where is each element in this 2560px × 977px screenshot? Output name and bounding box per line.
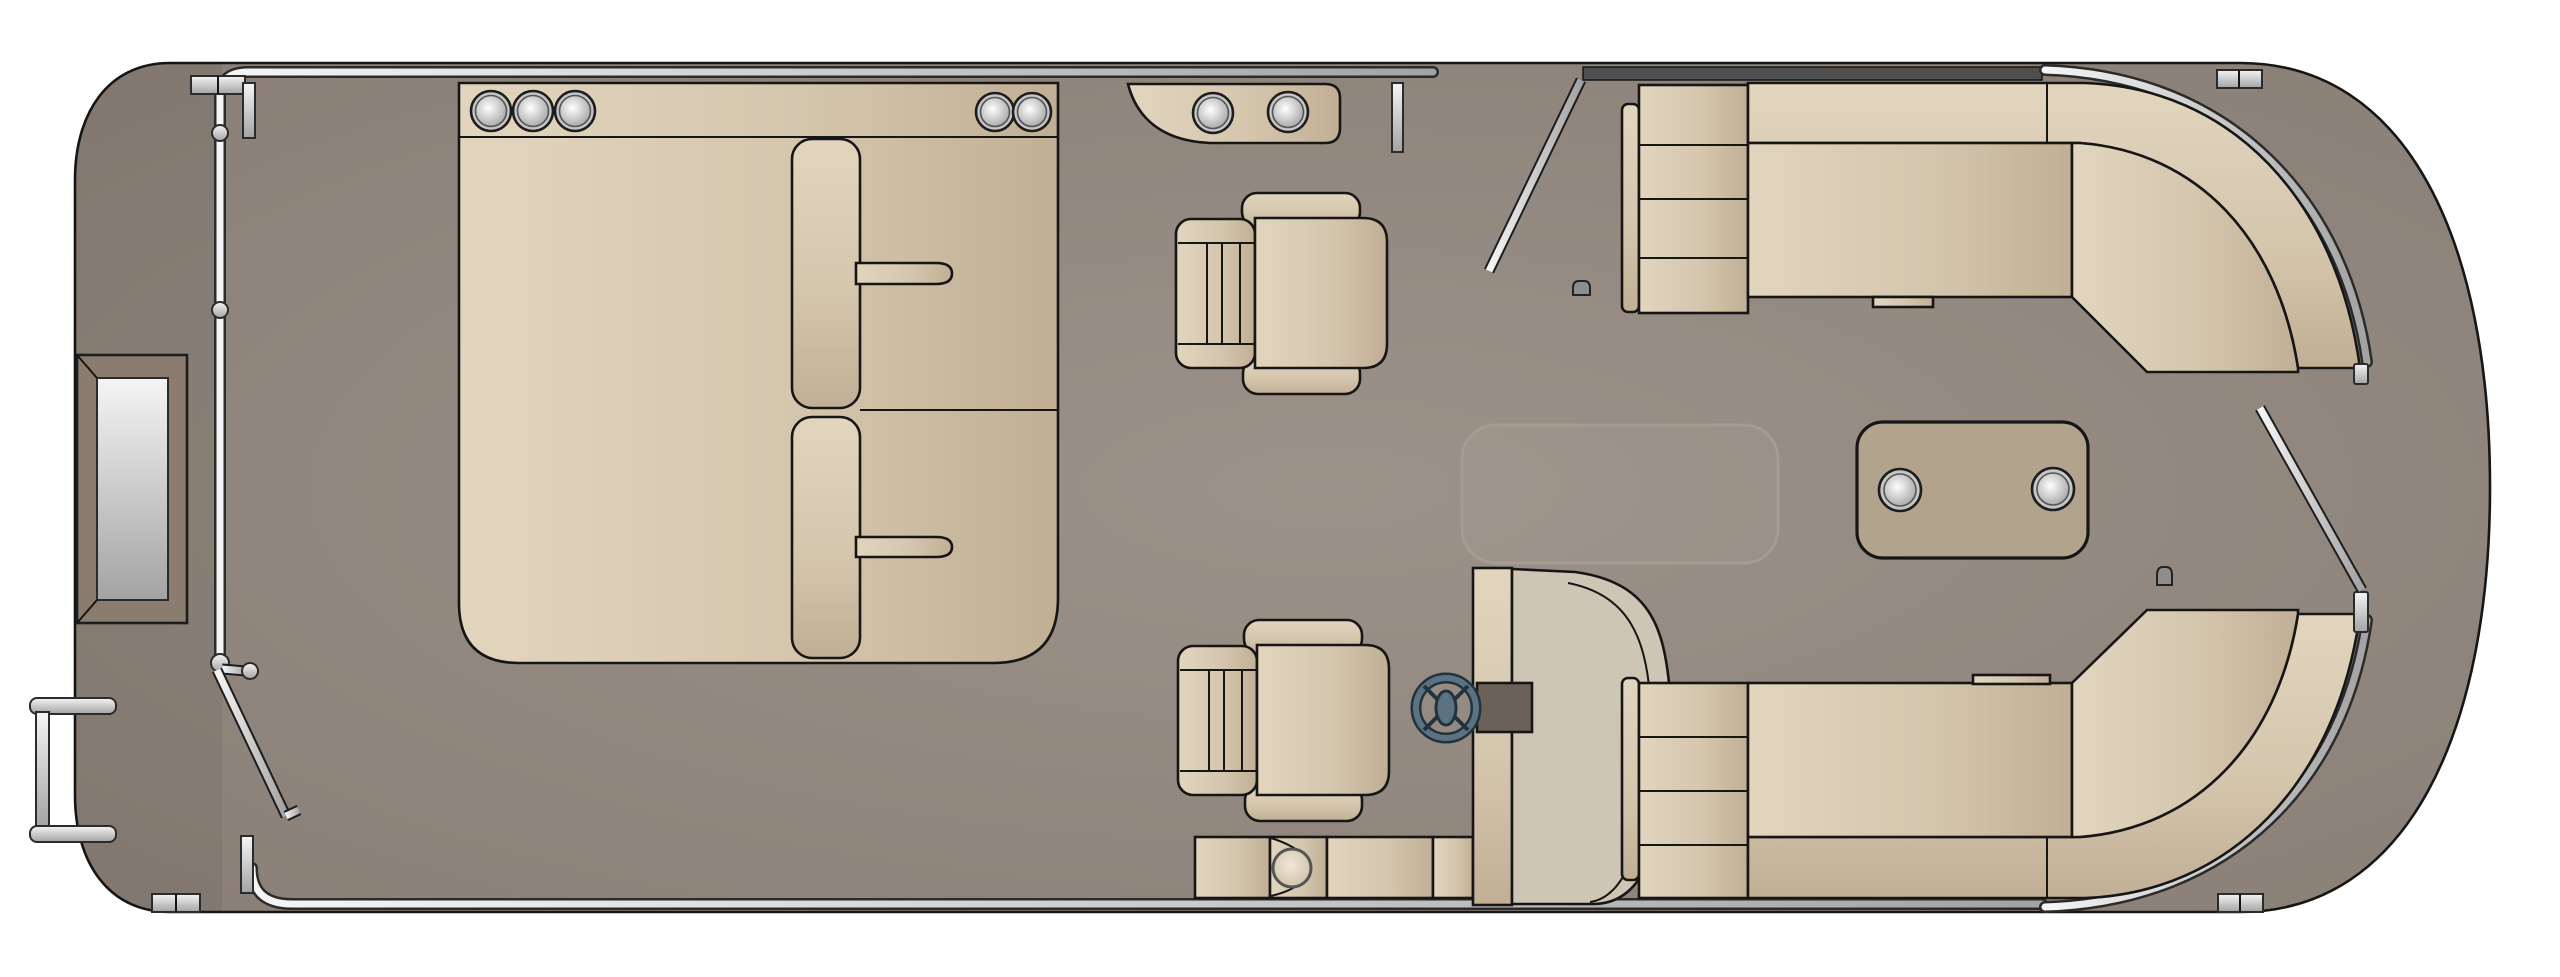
helm-console-wall: [1473, 568, 1512, 905]
cocktail-table: [1857, 422, 2088, 558]
lounge-armrest-pad: [856, 263, 952, 284]
lounge-divider-cushion: [792, 139, 860, 408]
bench-cushion: [1327, 837, 1433, 898]
rail-ball-fitting: [212, 302, 228, 318]
cleat-stern-top: [2217, 70, 2262, 88]
ladder-rung: [30, 826, 116, 842]
captains-chair: [1178, 620, 1389, 821]
lounge-side-backrest: [1622, 104, 1639, 312]
bow-boarding-panel: [77, 355, 187, 623]
lounge-armrest-pad: [856, 537, 952, 557]
cleat-bow-bottom: [152, 894, 200, 912]
speaker-icon: [513, 91, 553, 131]
cup-holder-icon: [1268, 92, 1308, 132]
lounge-seat-row: [1748, 143, 2072, 297]
speaker-icon: [976, 93, 1014, 131]
panel-hatch: [97, 378, 168, 600]
jump-seat-bench: [1195, 837, 1473, 898]
lounge-latch-tab: [1873, 297, 1933, 307]
helm-mount-box: [1477, 683, 1532, 732]
gate-post: [241, 836, 253, 893]
deck-drain-icon: [2157, 567, 2172, 585]
speaker-icon: [471, 91, 511, 131]
bow-lounge: [459, 83, 1058, 663]
captains-chair: [1176, 193, 1387, 394]
pontoon-floorplan-stage: [0, 0, 2560, 977]
cup-holder-icon: [1879, 469, 1921, 511]
deck-drain-icon: [1573, 281, 1590, 295]
chair-seat: [1255, 218, 1387, 368]
lounge-divider-cushion: [792, 417, 860, 658]
gate-post: [2354, 364, 2368, 384]
stern-top-fence-band: [1583, 67, 2042, 80]
rail-ball-fitting: [212, 125, 228, 141]
bench-cushion: [1195, 837, 1270, 898]
gate-post: [243, 83, 255, 138]
bow-lounge-base: [459, 83, 1058, 663]
lounge-latch-tab: [1973, 675, 2050, 684]
pontoon-floorplan-svg: [0, 0, 2560, 977]
bench-cup-holder-icon: [1273, 849, 1311, 887]
rail-ball-fitting: [242, 663, 258, 679]
gate-post: [1392, 83, 1403, 152]
speaker-icon: [1013, 93, 1051, 131]
ladder-rail: [36, 712, 49, 828]
cleat-stern-bottom: [2218, 894, 2263, 912]
cup-holder-icon: [2032, 468, 2074, 510]
gate-post: [2354, 592, 2368, 632]
lounge-seat-row: [1748, 683, 2072, 837]
lounge-side-backrest: [1622, 678, 1639, 880]
cleat-bow-top: [191, 76, 245, 94]
chair-backrest: [1176, 219, 1255, 368]
cup-holder-icon: [1193, 93, 1233, 133]
speaker-icon: [555, 91, 595, 131]
in-floor-storage-hatch: [1462, 425, 1778, 563]
bench-cushion: [1433, 837, 1473, 898]
